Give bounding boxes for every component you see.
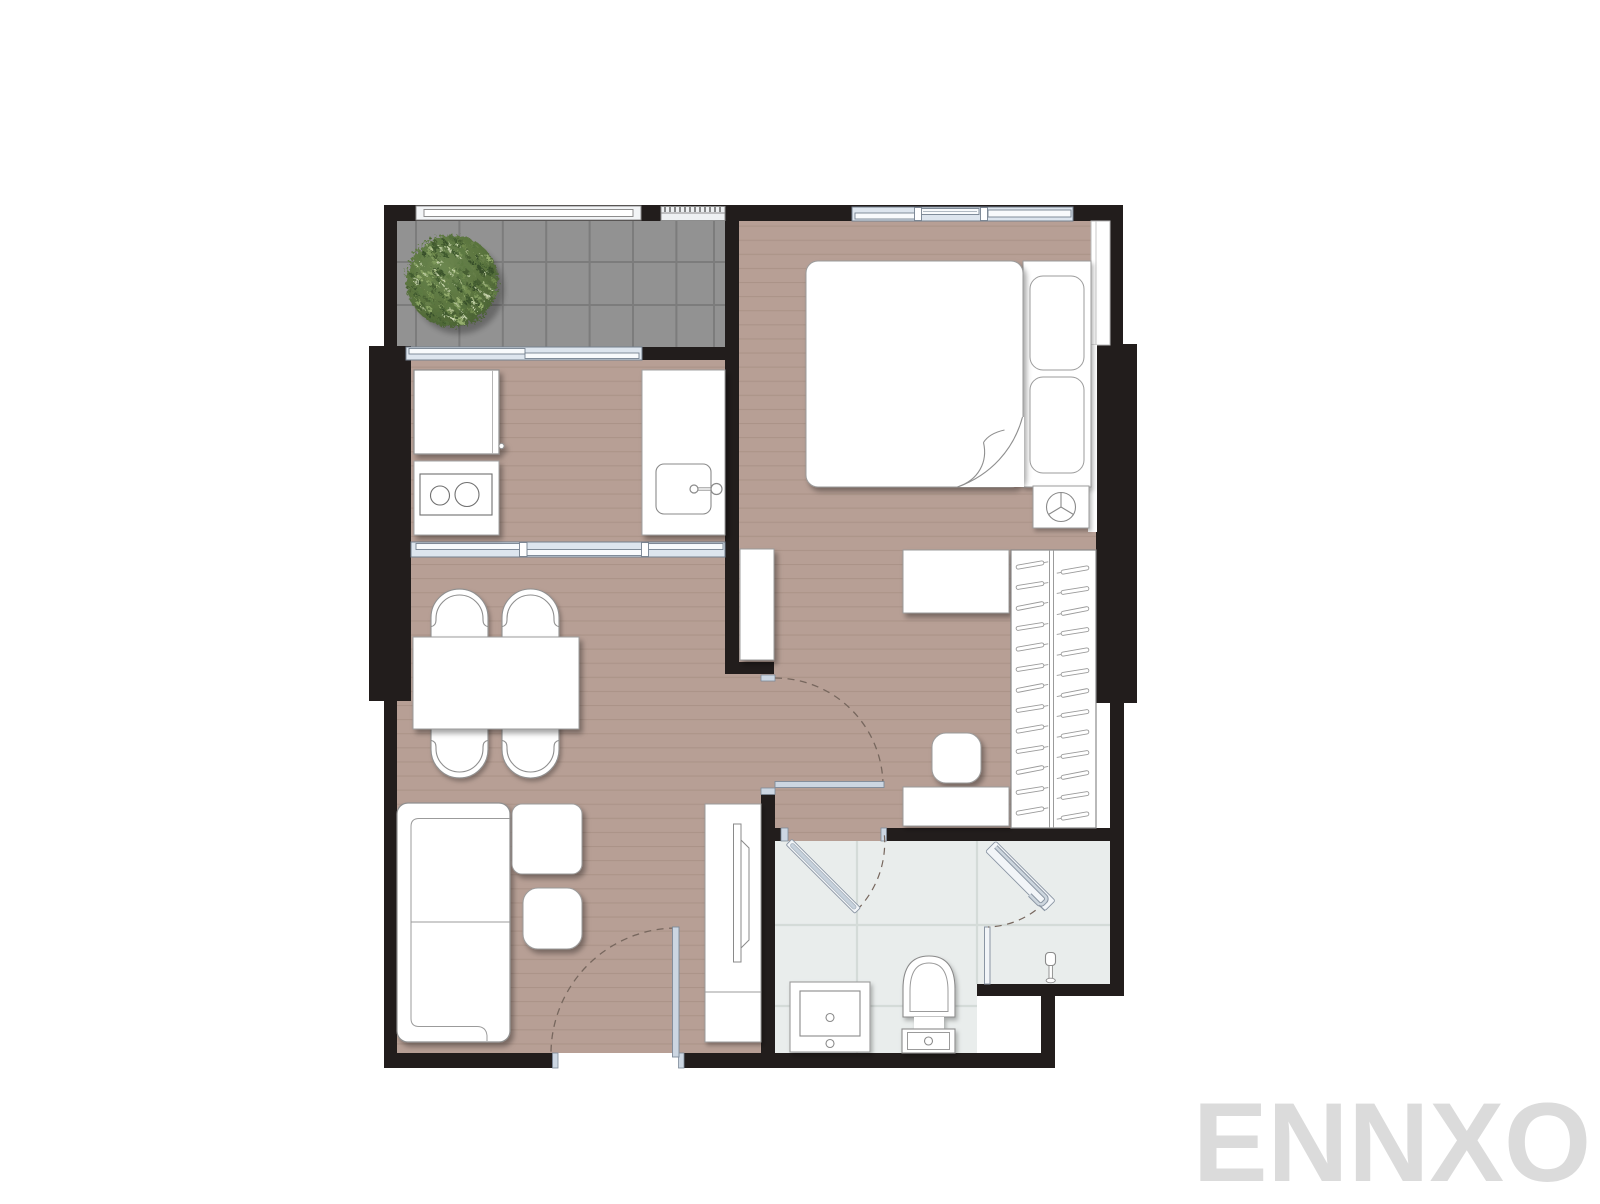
svg-text:ENNXO: ENNXO (1193, 1080, 1591, 1204)
